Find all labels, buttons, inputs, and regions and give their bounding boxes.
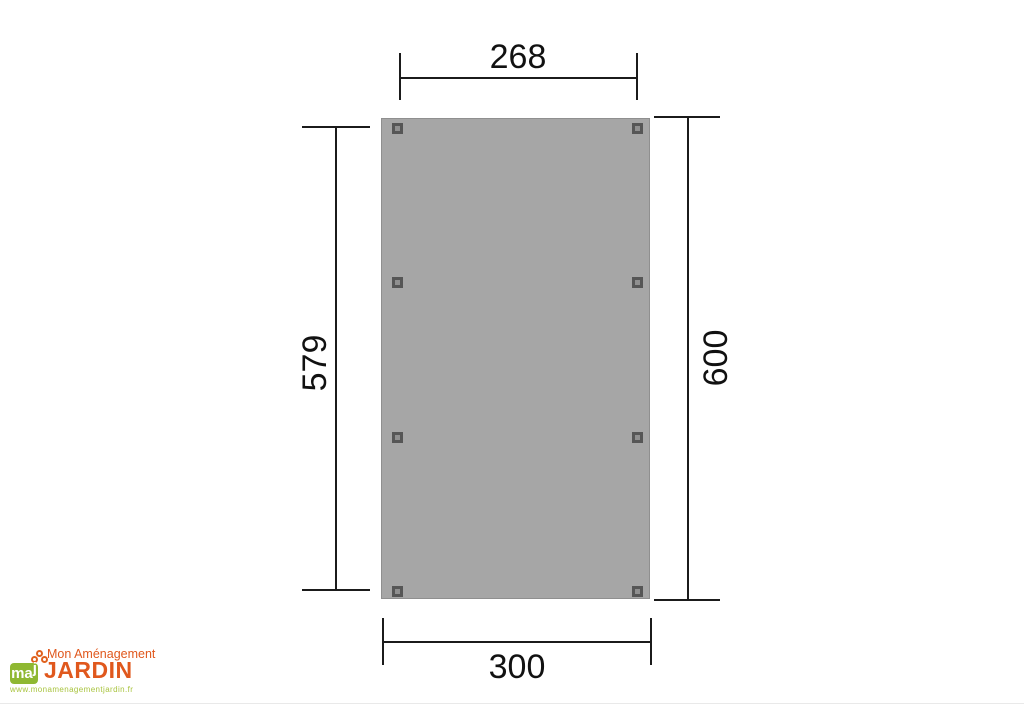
post-marker [632, 277, 643, 288]
dim-right-line [687, 116, 689, 601]
dim-top-tick-left [399, 53, 401, 100]
dim-top-label: 268 [490, 40, 547, 74]
post-marker [632, 123, 643, 134]
dim-bottom-line [382, 641, 652, 643]
brand-monogram-j: j [33, 658, 37, 679]
brand-url: www.monamenagementjardin.fr [10, 686, 133, 694]
brand-name: JARDIN [44, 659, 133, 682]
dim-left-tick-top [302, 126, 370, 128]
dim-left-tick-bottom [302, 589, 370, 591]
dim-bottom-tick-left [382, 618, 384, 665]
post-marker [392, 432, 403, 443]
dim-right-tick-bottom [654, 599, 720, 601]
brand-monogram: maj [10, 663, 38, 684]
carport-slab [381, 118, 650, 599]
dim-bottom-tick-right [650, 618, 652, 665]
page-bottom-border [0, 703, 1024, 704]
post-marker [392, 123, 403, 134]
dim-bottom-label: 300 [489, 650, 546, 684]
post-marker [392, 586, 403, 597]
dim-right-label: 600 [699, 330, 733, 387]
dim-left-label: 579 [298, 335, 332, 392]
brand-logo: Mon Aménagement JARDIN maj www.monamenag… [8, 644, 168, 700]
dim-left-line [335, 126, 337, 591]
dimension-drawing: 268 300 579 600 Mon Aménagement JARDIN m… [0, 0, 1024, 705]
brand-monogram-ma: ma [11, 665, 33, 682]
post-marker [632, 432, 643, 443]
post-marker [392, 277, 403, 288]
dim-top-tick-right [636, 53, 638, 100]
post-marker [632, 586, 643, 597]
dim-right-tick-top [654, 116, 720, 118]
dim-top-line [399, 77, 638, 79]
